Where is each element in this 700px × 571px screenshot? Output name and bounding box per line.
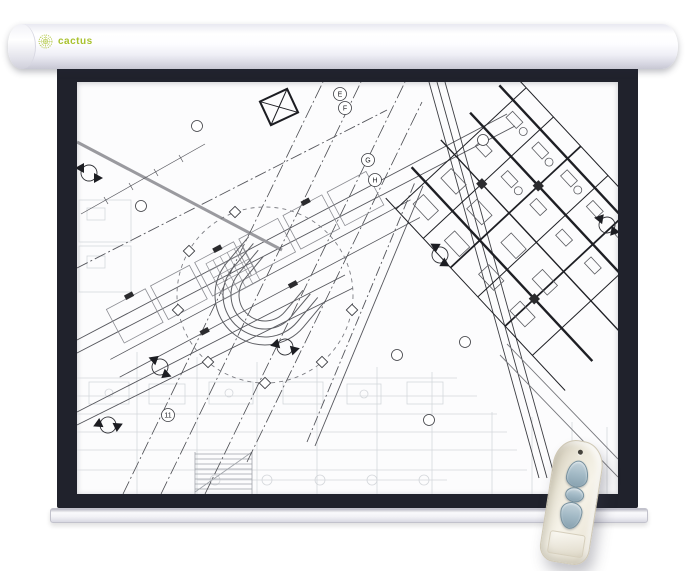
product-photo: E F G H 11 (0, 0, 700, 571)
brand-logo-text: cactus (58, 36, 93, 47)
remote-led-icon (578, 449, 584, 455)
grid-bubble-label: E (338, 92, 343, 99)
logo-mark-icon (38, 34, 53, 49)
grid-bubble-label: G (365, 158, 370, 165)
grid-bubble-label: F (343, 106, 347, 113)
right-wing-rooms (382, 82, 618, 390)
grid-bubble-label: 11 (164, 413, 171, 420)
remote-down-button[interactable] (558, 500, 584, 530)
remote-stop-button[interactable] (564, 486, 585, 504)
horseshoe-core (195, 237, 326, 366)
screen-surface: E F G H 11 (77, 82, 618, 494)
boundary-axes (429, 82, 618, 478)
remote-battery-cover (547, 530, 586, 558)
staircase (195, 452, 252, 494)
blueprint-drawing: E F G H 11 (77, 82, 618, 494)
screen-casing: cactus (8, 24, 678, 69)
core-dashed-circle (177, 207, 353, 383)
grid-bubble-label: H (372, 178, 377, 185)
shaft-x-box (260, 89, 298, 125)
remote-up-button[interactable] (564, 459, 590, 489)
brand-logo: cactus (38, 34, 93, 49)
underlay-plan (77, 200, 607, 494)
